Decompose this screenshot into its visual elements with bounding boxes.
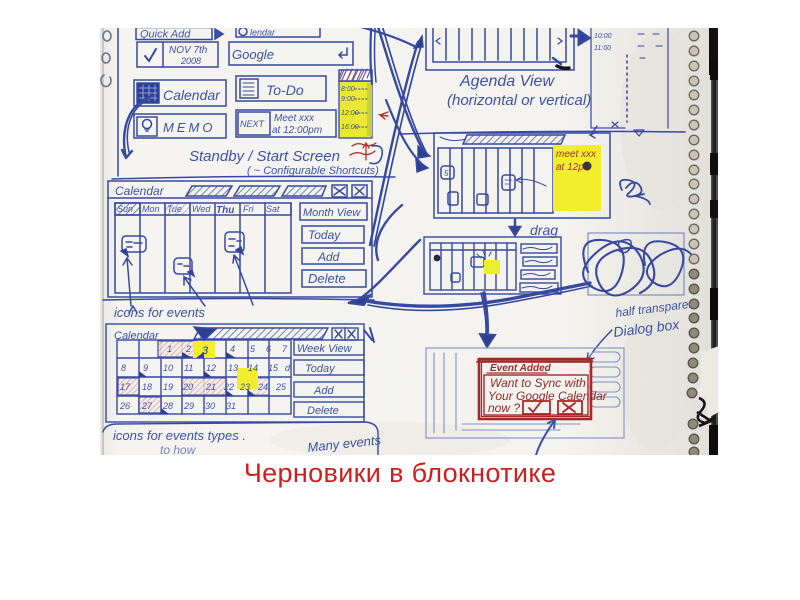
- svg-text:Agenda View: Agenda View: [459, 73, 555, 90]
- svg-text:16:00: 16:00: [341, 124, 359, 131]
- svg-text:2008: 2008: [180, 56, 201, 66]
- svg-text:at 12:00pm: at 12:00pm: [272, 125, 322, 136]
- svg-text:21: 21: [205, 382, 216, 392]
- svg-text:lendar: lendar: [250, 28, 276, 38]
- svg-text:icons for events: icons for events: [114, 305, 206, 320]
- svg-text:11:00: 11:00: [594, 45, 611, 52]
- svg-text:28: 28: [162, 401, 173, 411]
- svg-text:Mon: Mon: [142, 204, 160, 214]
- svg-text:10: 10: [163, 363, 173, 373]
- svg-text:9: 9: [143, 363, 148, 373]
- svg-text:19: 19: [163, 382, 173, 392]
- svg-text:30: 30: [205, 401, 215, 411]
- svg-text:( ~ Configurable Shortcuts): ( ~ Configurable Shortcuts): [247, 165, 379, 177]
- svg-text:Calendar: Calendar: [115, 184, 165, 198]
- svg-text:Google: Google: [232, 47, 274, 62]
- svg-text:27: 27: [141, 401, 153, 411]
- svg-text:1: 1: [167, 344, 172, 354]
- svg-text:5: 5: [444, 169, 449, 178]
- svg-text:3: 3: [202, 345, 209, 357]
- svg-text:4: 4: [230, 344, 235, 354]
- svg-text:22: 22: [223, 382, 234, 392]
- svg-text:Sat: Sat: [266, 204, 280, 214]
- svg-text:8: 8: [121, 363, 126, 373]
- svg-text:13: 13: [228, 363, 238, 373]
- svg-text:Fri: Fri: [243, 204, 254, 214]
- svg-text:6: 6: [266, 344, 271, 354]
- svg-text:Standby / Start Screen: Standby / Start Screen: [189, 148, 340, 165]
- svg-text:Sun: Sun: [117, 204, 133, 214]
- svg-text:NOV 7th: NOV 7th: [169, 45, 208, 56]
- svg-text:icons for events types .: icons for events types .: [113, 428, 246, 443]
- svg-text:Add: Add: [317, 250, 340, 264]
- svg-text:Meet xxx: Meet xxx: [274, 113, 315, 124]
- svg-text:Today: Today: [305, 363, 336, 375]
- svg-text:23: 23: [239, 382, 250, 392]
- svg-text:8:00: 8:00: [341, 86, 355, 93]
- svg-text:Delete: Delete: [307, 405, 339, 417]
- svg-text:(horizontal or vertical): (horizontal or vertical): [447, 92, 591, 109]
- svg-text:Delete: Delete: [308, 271, 346, 286]
- svg-text:Want to Sync with: Want to Sync with: [490, 376, 586, 390]
- svg-text:17: 17: [120, 382, 131, 392]
- svg-text:Wed: Wed: [192, 204, 211, 214]
- svg-text:9:00: 9:00: [341, 96, 355, 103]
- svg-text:11: 11: [184, 363, 193, 373]
- svg-text:To-Do: To-Do: [266, 82, 304, 98]
- svg-text:Week View: Week View: [297, 343, 353, 355]
- svg-text:Month View: Month View: [303, 207, 361, 219]
- svg-text:Today: Today: [308, 228, 341, 242]
- svg-text:18: 18: [142, 382, 152, 392]
- svg-text:NEXT: NEXT: [240, 119, 266, 129]
- svg-text:20: 20: [182, 382, 193, 392]
- svg-text:2: 2: [185, 344, 191, 354]
- svg-text:now ?: now ?: [488, 401, 520, 415]
- svg-text:Tue: Tue: [167, 204, 182, 214]
- svg-text:12:00: 12:00: [341, 110, 359, 117]
- svg-text:at 12p: at 12p: [556, 162, 584, 173]
- svg-text:26: 26: [119, 401, 130, 411]
- svg-text:31: 31: [226, 401, 236, 411]
- svg-text:24: 24: [257, 382, 268, 392]
- svg-text:Add: Add: [313, 385, 334, 397]
- svg-text:15: 15: [268, 363, 279, 373]
- svg-text:25: 25: [275, 382, 287, 392]
- svg-text:29: 29: [183, 401, 194, 411]
- svg-text:to how: to how: [160, 443, 197, 455]
- svg-text:Thu: Thu: [216, 205, 234, 216]
- svg-text:drag: drag: [530, 222, 558, 238]
- svg-text:Calendar: Calendar: [163, 87, 221, 103]
- svg-text:10:00: 10:00: [594, 33, 612, 40]
- svg-text:12: 12: [206, 363, 216, 373]
- svg-text:MEMO: MEMO: [163, 120, 215, 135]
- svg-text:Event Added: Event Added: [490, 363, 552, 374]
- svg-text:meet xxx: meet xxx: [556, 149, 597, 160]
- svg-text:14: 14: [248, 363, 258, 373]
- svg-text:Quick Add: Quick Add: [140, 29, 191, 41]
